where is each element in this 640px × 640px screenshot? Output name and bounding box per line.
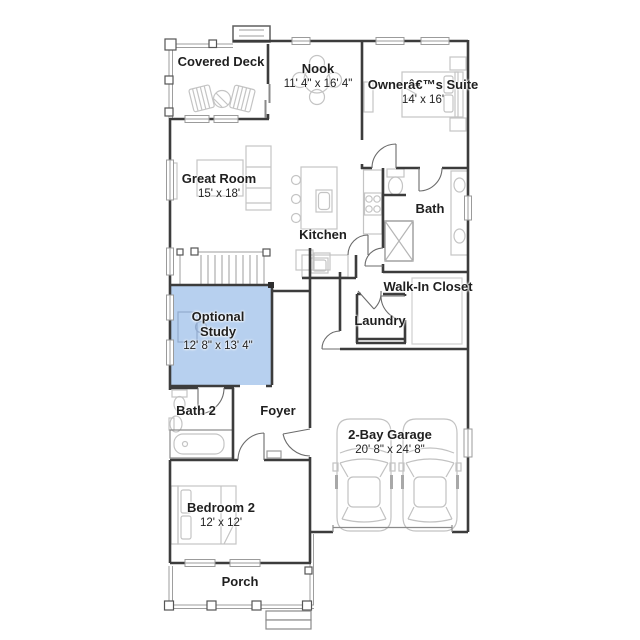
- deck-chair-icon: [229, 85, 255, 112]
- door-bath-hall: [348, 235, 368, 255]
- room-label-owners-suite: Ownerâ€™s Suite 14' x 16': [368, 78, 479, 107]
- kitchen-fixtures: [292, 167, 383, 277]
- wall-corner-block: [268, 282, 274, 288]
- door-garage-hall: [322, 331, 340, 349]
- foyer-console: [267, 451, 281, 458]
- room-label-laundry: Laundry: [354, 314, 405, 330]
- door-suite-bath: [419, 168, 442, 191]
- room-label-porch: Porch: [222, 575, 259, 591]
- door-bedroom2: [238, 433, 264, 460]
- room-label-bath-2: Bath 2: [176, 404, 216, 420]
- door-laundry: [358, 291, 381, 309]
- room-label-covered-deck: Covered Deck: [178, 55, 265, 71]
- floor-plan-canvas: [0, 0, 640, 640]
- room-label-nook: Nook 11' 4" x 16' 4": [284, 62, 353, 91]
- bath2-fixtures: [169, 390, 233, 458]
- porch-steps: [266, 611, 311, 629]
- deck-table-icon: [214, 91, 231, 108]
- room-label-kitchen: Kitchen: [299, 228, 347, 244]
- room-label-bath: Bath: [416, 202, 445, 218]
- chimney: [233, 26, 270, 42]
- door-foyer-garage: [283, 429, 310, 456]
- sliding-door: [266, 84, 270, 118]
- room-label-bedroom-2: Bedroom 2 12' x 12': [187, 501, 255, 530]
- deck-chair-icon: [189, 85, 215, 112]
- room-label-foyer: Foyer: [260, 404, 295, 420]
- room-label-garage: 2-Bay Garage 20' 8" x 24' 8": [348, 428, 432, 457]
- door-suite-entry: [372, 144, 396, 168]
- room-label-great-room: Great Room 15' x 18': [182, 172, 256, 201]
- room-label-optional-study: Optional Study 12' 8" x 13' 4": [182, 310, 254, 353]
- floor-plan-page: Covered Deck Nook 11' 4" x 16' 4" Ownerâ…: [0, 0, 640, 640]
- room-label-walk-in-closet: Walk-In Closet: [383, 280, 472, 296]
